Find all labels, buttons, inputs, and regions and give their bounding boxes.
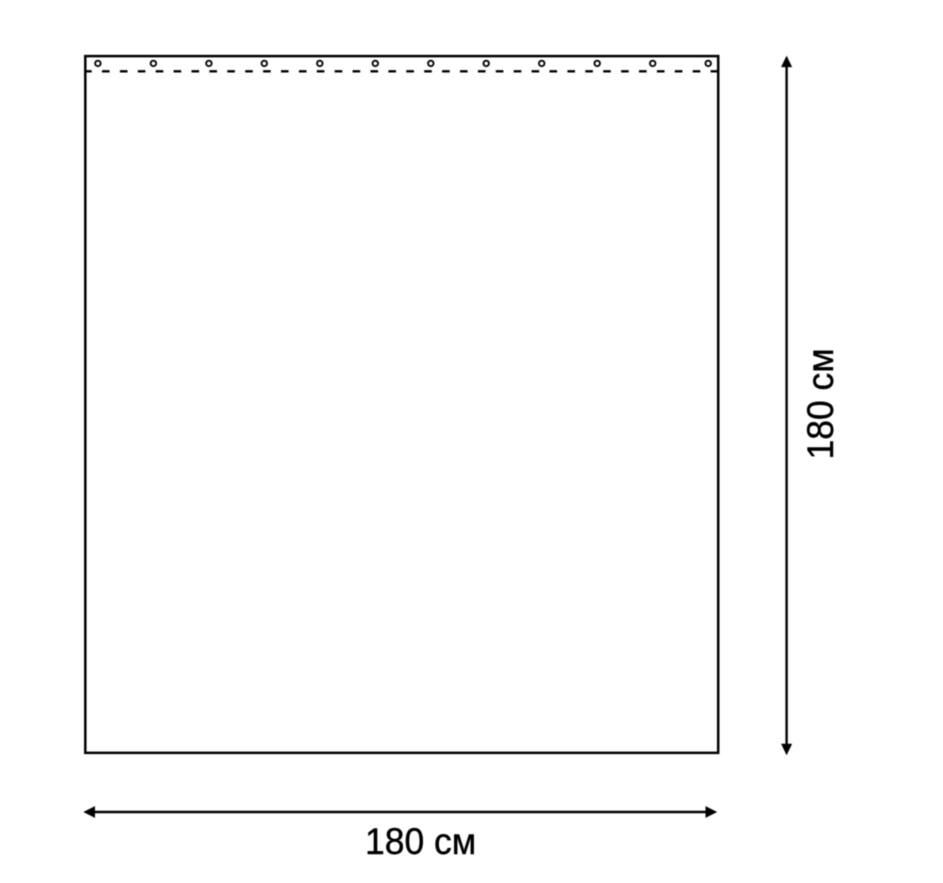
- svg-text:180 см: 180 см: [799, 348, 841, 459]
- svg-text:180 см: 180 см: [365, 820, 476, 862]
